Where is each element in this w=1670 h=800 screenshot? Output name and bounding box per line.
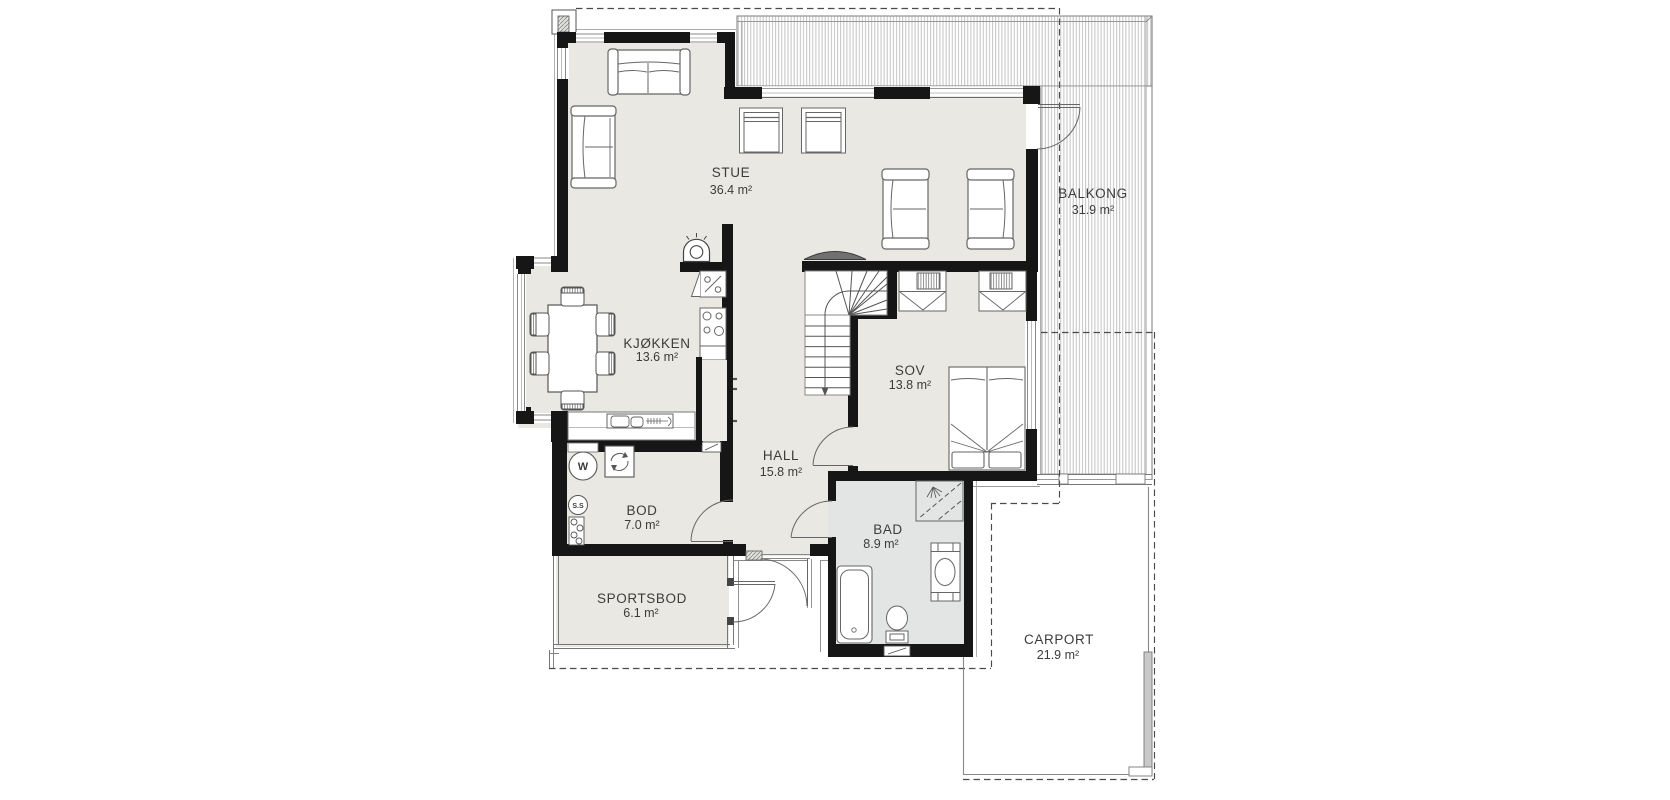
svg-text:BOD: BOD xyxy=(626,503,657,518)
svg-text:SPORTSBOD: SPORTSBOD xyxy=(597,591,687,606)
svg-text:7.0 m²: 7.0 m² xyxy=(624,518,659,532)
svg-text:STUE: STUE xyxy=(712,165,750,180)
svg-text:BAD: BAD xyxy=(873,522,903,537)
svg-text:HALL: HALL xyxy=(763,448,799,463)
svg-text:8.9 m²: 8.9 m² xyxy=(863,537,898,551)
svg-text:KJØKKEN: KJØKKEN xyxy=(623,336,690,351)
svg-text:15.8 m²: 15.8 m² xyxy=(760,465,802,479)
svg-text:W: W xyxy=(578,461,589,473)
svg-text:S.S: S.S xyxy=(572,503,584,510)
svg-text:BALKONG: BALKONG xyxy=(1058,186,1127,201)
svg-text:31.9 m²: 31.9 m² xyxy=(1072,203,1114,217)
svg-text:21.9 m²: 21.9 m² xyxy=(1037,648,1079,662)
svg-text:6.1 m²: 6.1 m² xyxy=(623,606,658,620)
svg-text:13.8 m²: 13.8 m² xyxy=(889,378,931,392)
svg-text:13.6 m²: 13.6 m² xyxy=(636,350,678,364)
svg-text:SOV: SOV xyxy=(895,363,925,378)
svg-text:CARPORT: CARPORT xyxy=(1024,632,1094,647)
svg-text:36.4 m²: 36.4 m² xyxy=(710,183,752,197)
